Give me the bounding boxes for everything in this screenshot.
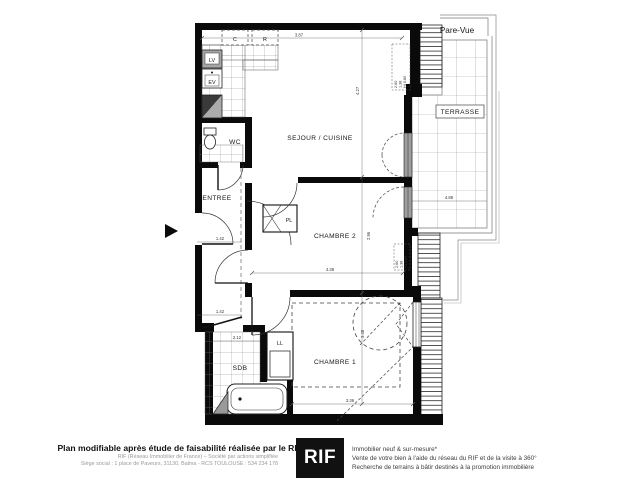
wc-label: WC bbox=[229, 139, 241, 146]
chambre2-label: CHAMBRE 2 bbox=[314, 233, 356, 240]
chambre1-label: CHAMBRE 1 bbox=[314, 359, 356, 366]
window-note-mid: 2.60 1.38 Ht 0.80 bbox=[395, 256, 408, 268]
dim-sejour-h: 4.27 bbox=[355, 86, 360, 95]
footer-claim-text: Plan modifiable après étude de faisabili… bbox=[40, 444, 302, 454]
floor-plan-page: 4.88 TERRASSE Pare-Vue bbox=[0, 0, 640, 480]
dim-sdb: 2.12 bbox=[233, 335, 242, 340]
dim-ch1-h: 3.48 bbox=[360, 329, 365, 338]
svg-text:1.38: 1.38 bbox=[400, 261, 404, 268]
placard-label: PL bbox=[286, 218, 293, 224]
service-line-2: Vente de votre bien à l'aide du réseau d… bbox=[352, 454, 537, 463]
window-note-top: 2.60 1.38 Ht 0.80 bbox=[394, 76, 407, 88]
footer-legal-line1: RIF (Réseau Immobilier de France) – Soci… bbox=[40, 454, 302, 461]
svg-text:2.60: 2.60 bbox=[395, 261, 399, 268]
svg-text:1.38: 1.38 bbox=[399, 81, 403, 88]
entrance-arrow-icon bbox=[165, 224, 178, 238]
footer-disclaimer: Plan modifiable après étude de faisabili… bbox=[40, 444, 302, 467]
dim-couloir: 1.42 bbox=[216, 309, 225, 314]
dim-ch1-w: 3.36 bbox=[346, 398, 355, 403]
ll-label: LL bbox=[277, 341, 283, 347]
dishwasher-label: LV bbox=[209, 58, 216, 64]
wc-room: WC bbox=[200, 128, 243, 190]
entree-label: ENTREE bbox=[202, 195, 231, 202]
svg-text:Ht 0.80: Ht 0.80 bbox=[403, 76, 407, 88]
dim-terrasse-width: 4.88 bbox=[445, 195, 454, 200]
sejour-label: SEJOUR / CUISINE bbox=[287, 135, 353, 142]
pare-vue-label: Pare-Vue bbox=[440, 26, 475, 35]
footer-services: Immobilier neuf & sur-mesure* Vente de v… bbox=[352, 445, 537, 472]
dim-ch2-h: 2.96 bbox=[366, 231, 371, 240]
rif-logo-text: RIF bbox=[304, 447, 336, 469]
svg-text:Ht 0.80: Ht 0.80 bbox=[404, 256, 408, 268]
toilet bbox=[205, 135, 216, 149]
sink-label: EV bbox=[208, 80, 216, 86]
service-line-3: Recherche de terrains à bâtir destinés à… bbox=[352, 463, 537, 472]
rif-logo: RIF bbox=[296, 438, 344, 478]
kitchen: C R LV EV bbox=[202, 30, 278, 118]
dim-ch2-w: 4.38 bbox=[326, 267, 335, 272]
dim-entree: 1.42 bbox=[216, 236, 225, 241]
sdb-label: SDB bbox=[233, 365, 248, 372]
footer-legal-line2: Siège social : 1 place de Paveurs, 31130… bbox=[40, 461, 302, 468]
svg-text:2.60: 2.60 bbox=[394, 81, 398, 88]
service-line-1: Immobilier neuf & sur-mesure* bbox=[352, 445, 537, 454]
bed-outline bbox=[292, 303, 400, 387]
floor-plan-svg: 4.88 TERRASSE Pare-Vue bbox=[0, 0, 640, 440]
terrasse-label: TERRASSE bbox=[441, 109, 480, 116]
dim-kitchen: 3.87 bbox=[295, 33, 304, 38]
duct-shaft bbox=[202, 95, 222, 118]
washing-machine bbox=[270, 351, 290, 377]
entrance: ENTREE 1.42 1.42 bbox=[165, 168, 291, 322]
chambre2: PL CHAMBRE 2 4.38 2.96 bbox=[215, 183, 405, 283]
